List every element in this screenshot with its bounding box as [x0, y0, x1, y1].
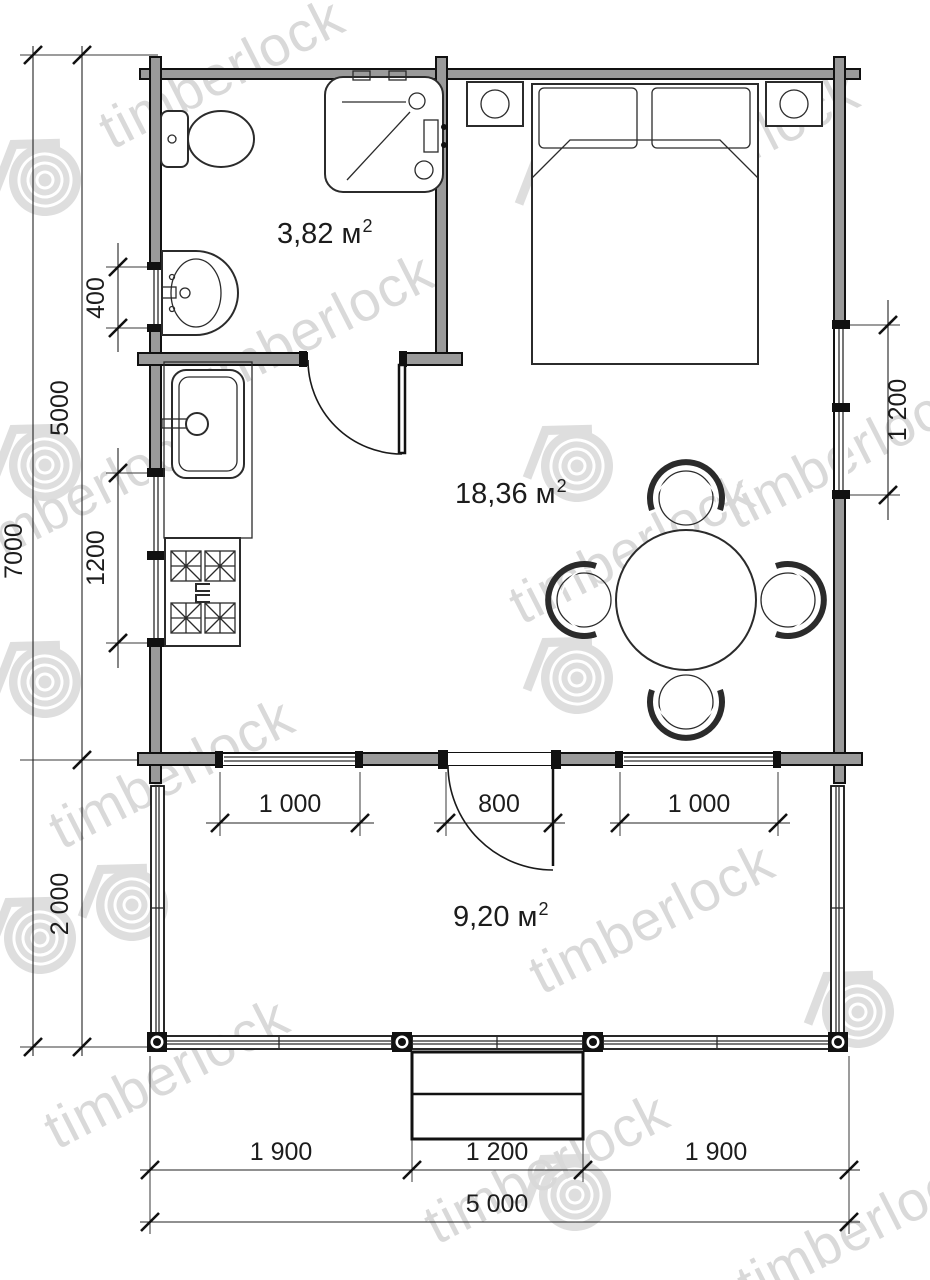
- nightstand-right: [766, 82, 822, 126]
- shower: [325, 71, 447, 192]
- wall-top: [140, 69, 860, 79]
- watermark-logo: [793, 955, 907, 1067]
- floor-plan-canvas: timberlock timberlock timberlock timberl…: [0, 0, 930, 1280]
- stove: [165, 538, 240, 646]
- wall-left: [150, 57, 161, 783]
- kitchen-sink: [162, 370, 244, 478]
- watermark-text: timberlock: [34, 984, 299, 1161]
- dim-bottom-left: 1 900: [250, 1138, 313, 1166]
- chair-right: [761, 564, 824, 636]
- terrace-area-value: 9,20 м: [453, 901, 537, 933]
- wall-interior-b: [400, 353, 462, 365]
- window-cap: [773, 751, 781, 768]
- terrace-area-label: 9,20 м2: [453, 899, 548, 933]
- dim-bottom-right: 1 900: [685, 1138, 748, 1166]
- dim-total-width: 5 000: [466, 1190, 529, 1218]
- bathroom-area-label: 3,82 м2: [277, 216, 372, 250]
- dim-terrace-door: 800: [478, 790, 520, 818]
- dim-right-window: 1 200: [884, 379, 912, 442]
- living-area-label: 18,36 м2: [455, 476, 567, 510]
- floor-plan-page: timberlock timberlock timberlock timberl…: [0, 0, 930, 1280]
- window-cap: [832, 320, 850, 329]
- window-mullion: [147, 551, 165, 560]
- window-cap: [615, 751, 623, 768]
- bed: [532, 84, 758, 364]
- dining-table: [616, 530, 756, 670]
- window-mullion: [832, 403, 850, 412]
- dim-total-height: 7000: [0, 523, 28, 579]
- watermark-logo: [0, 881, 88, 993]
- nightstand-left: [467, 82, 523, 126]
- dim-main-height: 5000: [46, 380, 74, 436]
- window-cap: [147, 468, 165, 477]
- watermark-text: timberlock: [39, 684, 304, 861]
- watermark-logo: [0, 625, 93, 737]
- dim-terrace-left: 1 000: [259, 790, 322, 818]
- bathroom-area-value: 3,82 м: [277, 218, 361, 250]
- terrace-post: [147, 1032, 167, 1052]
- watermark-logo: [512, 621, 626, 733]
- living-area-sup: 2: [557, 476, 567, 496]
- window-cap: [147, 638, 165, 647]
- window-cap: [832, 490, 850, 499]
- chair-bottom: [650, 675, 722, 738]
- terrace-post: [392, 1032, 412, 1052]
- terrace-area-sup: 2: [538, 899, 548, 919]
- bathroom-door: [299, 351, 407, 454]
- dim-terrace-right: 1 000: [668, 790, 731, 818]
- terrace-post: [828, 1032, 848, 1052]
- watermark-logo: [0, 123, 93, 235]
- living-area-value: 18,36 м: [455, 478, 556, 510]
- window-cap: [215, 751, 223, 768]
- dim-kitchen-window: 1200: [82, 530, 110, 586]
- toilet: [161, 111, 254, 167]
- terrace-post: [583, 1032, 603, 1052]
- watermark-text: timberlock: [519, 829, 784, 1006]
- window-cap: [355, 751, 363, 768]
- watermark-text: timberlock: [727, 1139, 930, 1280]
- dim-bottom-steps: 1 200: [466, 1138, 529, 1166]
- dim-bath-window: 400: [82, 277, 110, 319]
- bathroom-area-sup: 2: [362, 216, 372, 236]
- entrance-steps: [412, 1052, 583, 1139]
- dim-terrace-height: 2 000: [46, 873, 74, 936]
- wash-basin: [162, 251, 238, 335]
